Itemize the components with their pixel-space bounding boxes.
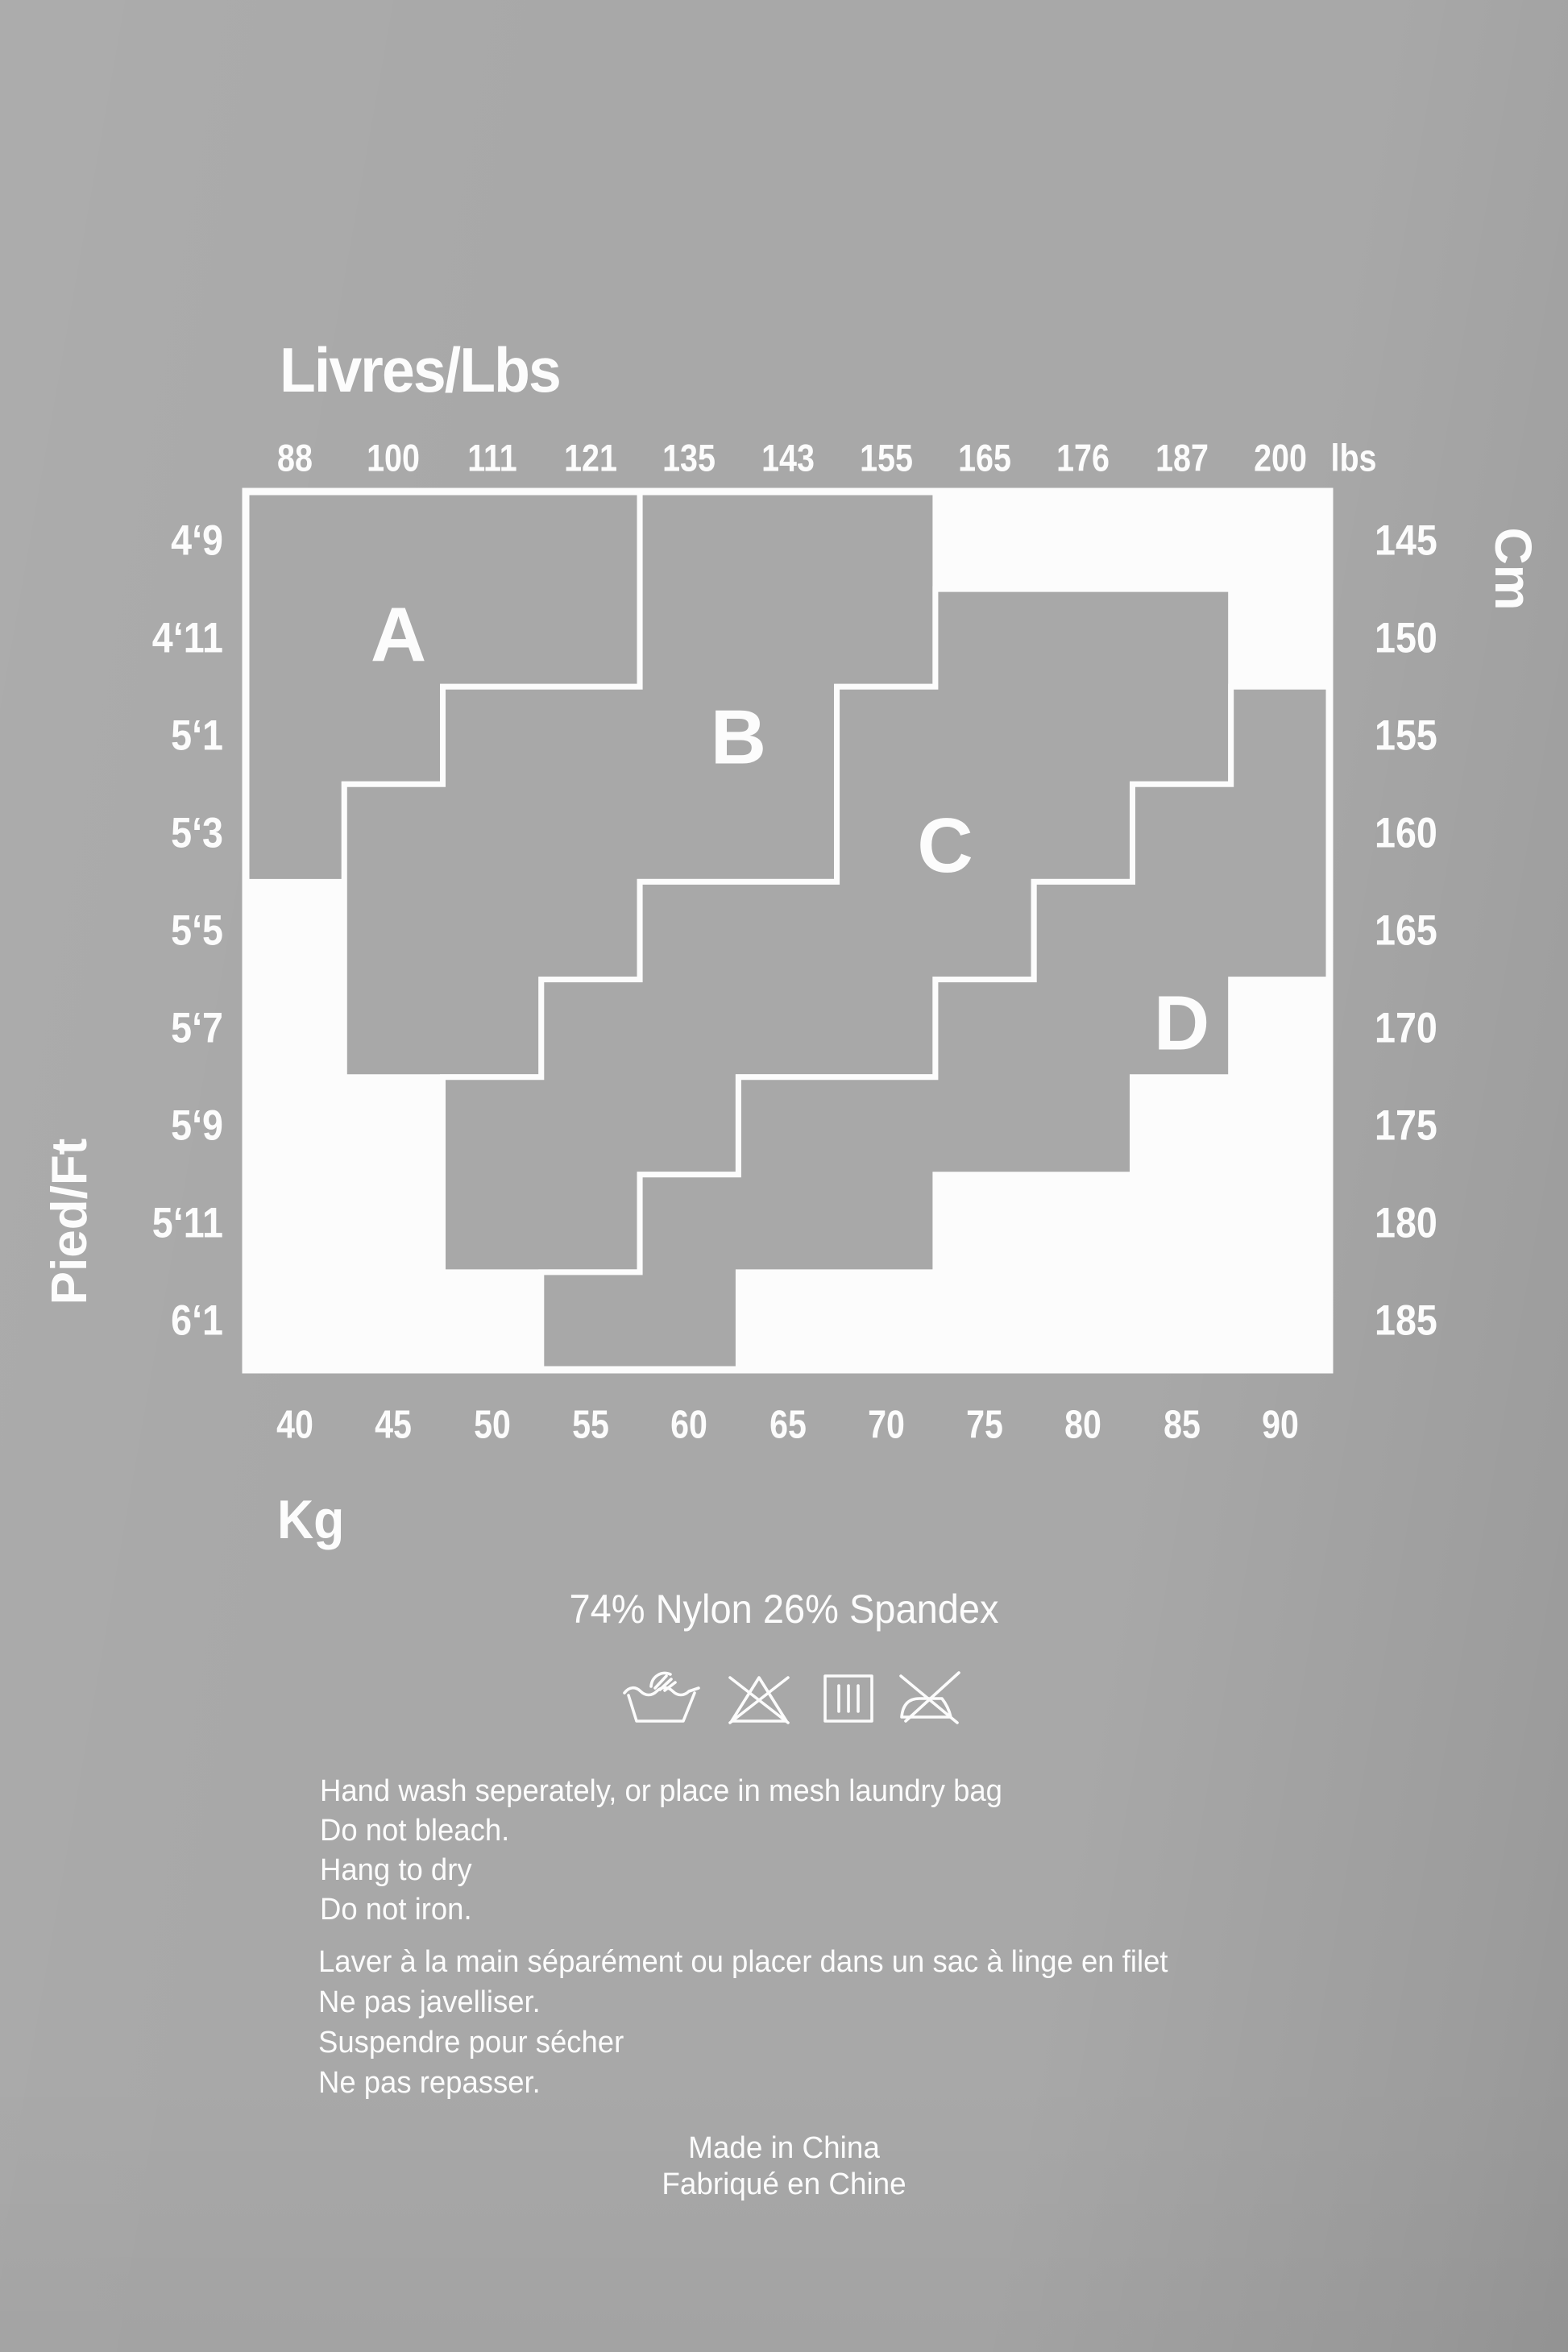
bottom-axis-tick-70: 70 [868,1406,905,1446]
care-line-fr: Suspendre pour sécher [318,2022,1168,2063]
hang-to-dry-icon [817,1670,880,1726]
right-axis-title: Cm [1487,527,1539,610]
right-axis-tick-185: 185 [1375,1300,1437,1342]
right-axis-tick-145: 145 [1375,519,1437,562]
left-axis-tick-5: 5‘7 [171,1007,223,1050]
size-zone-label-D: D [1154,981,1209,1067]
bottom-axis-tick-50: 50 [474,1406,511,1446]
right-axis-tick-180: 180 [1375,1202,1437,1245]
top-axis-tick-121: 121 [564,439,617,477]
left-axis-tick-6: 5‘9 [171,1105,223,1147]
top-axis-tick-176: 176 [1056,439,1110,477]
care-instructions-english: Hand wash seperately, or place in mesh l… [320,1772,1031,1930]
size-zone-label-B: B [711,695,766,781]
size-chart-label: Livres/Lbs 88100111121135143155165176187… [0,0,1568,2352]
left-axis-tick-2: 5‘1 [171,714,223,757]
size-zone-chart: ABCD [246,492,1329,1370]
bottom-axis-tick-80: 80 [1064,1406,1101,1446]
bottom-axis-tick-45: 45 [375,1406,413,1446]
left-axis-tick-8: 6‘1 [171,1300,223,1342]
bottom-axis-tick-60: 60 [670,1406,707,1446]
origin-line: Made in China [23,2130,1545,2167]
top-axis-title: Livres/Lbs [280,338,560,401]
fabric-composition: 74% Nylon 26% Spandex [569,1589,998,1629]
right-axis-tick-150: 150 [1375,616,1437,659]
bottom-axis-tick-55: 55 [572,1406,609,1446]
right-axis-tick-165: 165 [1375,910,1437,952]
origin-line: Fabriqué en Chine [23,2167,1545,2203]
left-axis-tick-4: 5‘5 [171,910,223,952]
top-axis-tick-88: 88 [277,439,313,477]
left-axis-tick-0: 4‘9 [171,519,223,562]
left-axis-tick-3: 5‘3 [171,811,223,854]
care-line-en: Do not iron. [320,1890,1002,1930]
bottom-axis-tick-90: 90 [1262,1406,1299,1446]
top-axis-tick-155: 155 [860,439,913,477]
right-axis-tick-155: 155 [1375,714,1437,757]
hand-wash-icon [620,1665,704,1728]
do-not-bleach-icon [724,1668,794,1728]
care-line-en: Do not bleach. [320,1811,1002,1851]
bottom-axis-tick-65: 65 [769,1406,807,1446]
right-axis-tick-170: 170 [1375,1007,1437,1050]
left-axis-tick-7: 5‘11 [152,1202,223,1245]
do-not-iron-icon [893,1666,965,1729]
bottom-axis-tick-75: 75 [966,1406,1003,1446]
left-axis-title: Pied/Ft [45,1139,95,1305]
care-line-en: Hand wash seperately, or place in mesh l… [320,1772,1002,1811]
size-zone-label-C: C [917,803,973,889]
top-axis-tick-135: 135 [662,439,716,477]
care-line-en: Hang to dry [320,1851,1002,1890]
bottom-axis-tick-85: 85 [1164,1406,1201,1446]
top-axis-tick-100: 100 [367,439,420,477]
top-axis-unit: lbs [1330,439,1376,477]
top-axis-tick-200: 200 [1254,439,1307,477]
care-line-fr: Ne pas javelliser. [318,1982,1168,2022]
care-line-fr: Laver à la main séparément ou placer dan… [318,1942,1168,1982]
care-line-fr: Ne pas repasser. [318,2063,1168,2103]
top-axis-tick-143: 143 [761,439,815,477]
right-axis-tick-175: 175 [1375,1105,1437,1147]
bottom-axis-tick-40: 40 [276,1406,313,1446]
right-axis-tick-160: 160 [1375,811,1437,854]
left-axis-tick-1: 4‘11 [152,616,223,659]
country-of-origin: Made in China Fabriqué en Chine [0,2130,1568,2203]
size-zone-label-A: A [371,592,426,678]
care-instructions-french: Laver à la main séparément ou placer dan… [318,1942,1203,2103]
bottom-axis-title: Kg [277,1492,344,1547]
top-axis-tick-187: 187 [1155,439,1209,477]
top-axis-tick-165: 165 [958,439,1011,477]
top-axis-tick-111: 111 [467,439,517,477]
